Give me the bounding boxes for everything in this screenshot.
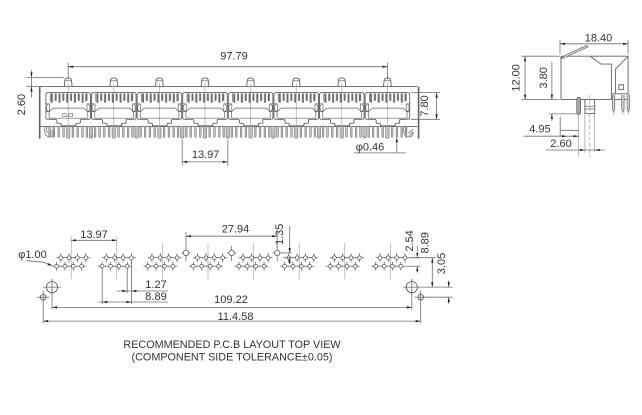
svg-text:8.89: 8.89 (420, 232, 432, 253)
svg-text:(COMPONENT SIDE TOLERANCE±0.05: (COMPONENT SIDE TOLERANCE±0.05) (132, 352, 333, 364)
svg-text:RECOMMENDED P.C.B LAYOUT TOP V: RECOMMENDED P.C.B LAYOUT TOP VIEW (123, 339, 341, 351)
svg-text:2.60: 2.60 (16, 94, 28, 115)
svg-text:109.22: 109.22 (214, 294, 248, 306)
svg-text:φ0.46: φ0.46 (356, 142, 385, 154)
svg-text:11.4.58: 11.4.58 (218, 311, 254, 323)
svg-text:18.40: 18.40 (585, 32, 613, 44)
svg-text:13.97: 13.97 (192, 149, 220, 161)
svg-text:1.35: 1.35 (274, 224, 286, 245)
svg-text:8.89: 8.89 (145, 291, 166, 303)
svg-text:12.00: 12.00 (511, 64, 523, 92)
svg-text:13.97: 13.97 (80, 229, 108, 241)
svg-text:3.80: 3.80 (538, 67, 550, 88)
svg-text:4.95: 4.95 (529, 124, 550, 136)
svg-text:97.79: 97.79 (220, 50, 248, 62)
svg-text:2.54: 2.54 (404, 230, 416, 251)
svg-text:CLCI: CLCI (62, 113, 74, 119)
svg-text:1.27: 1.27 (145, 279, 166, 291)
svg-text:27.94: 27.94 (222, 223, 250, 235)
svg-text:7.80: 7.80 (419, 95, 431, 116)
svg-text:2.60: 2.60 (550, 138, 571, 150)
svg-text:3.05: 3.05 (436, 253, 448, 274)
svg-text:φ1.00: φ1.00 (18, 249, 47, 261)
